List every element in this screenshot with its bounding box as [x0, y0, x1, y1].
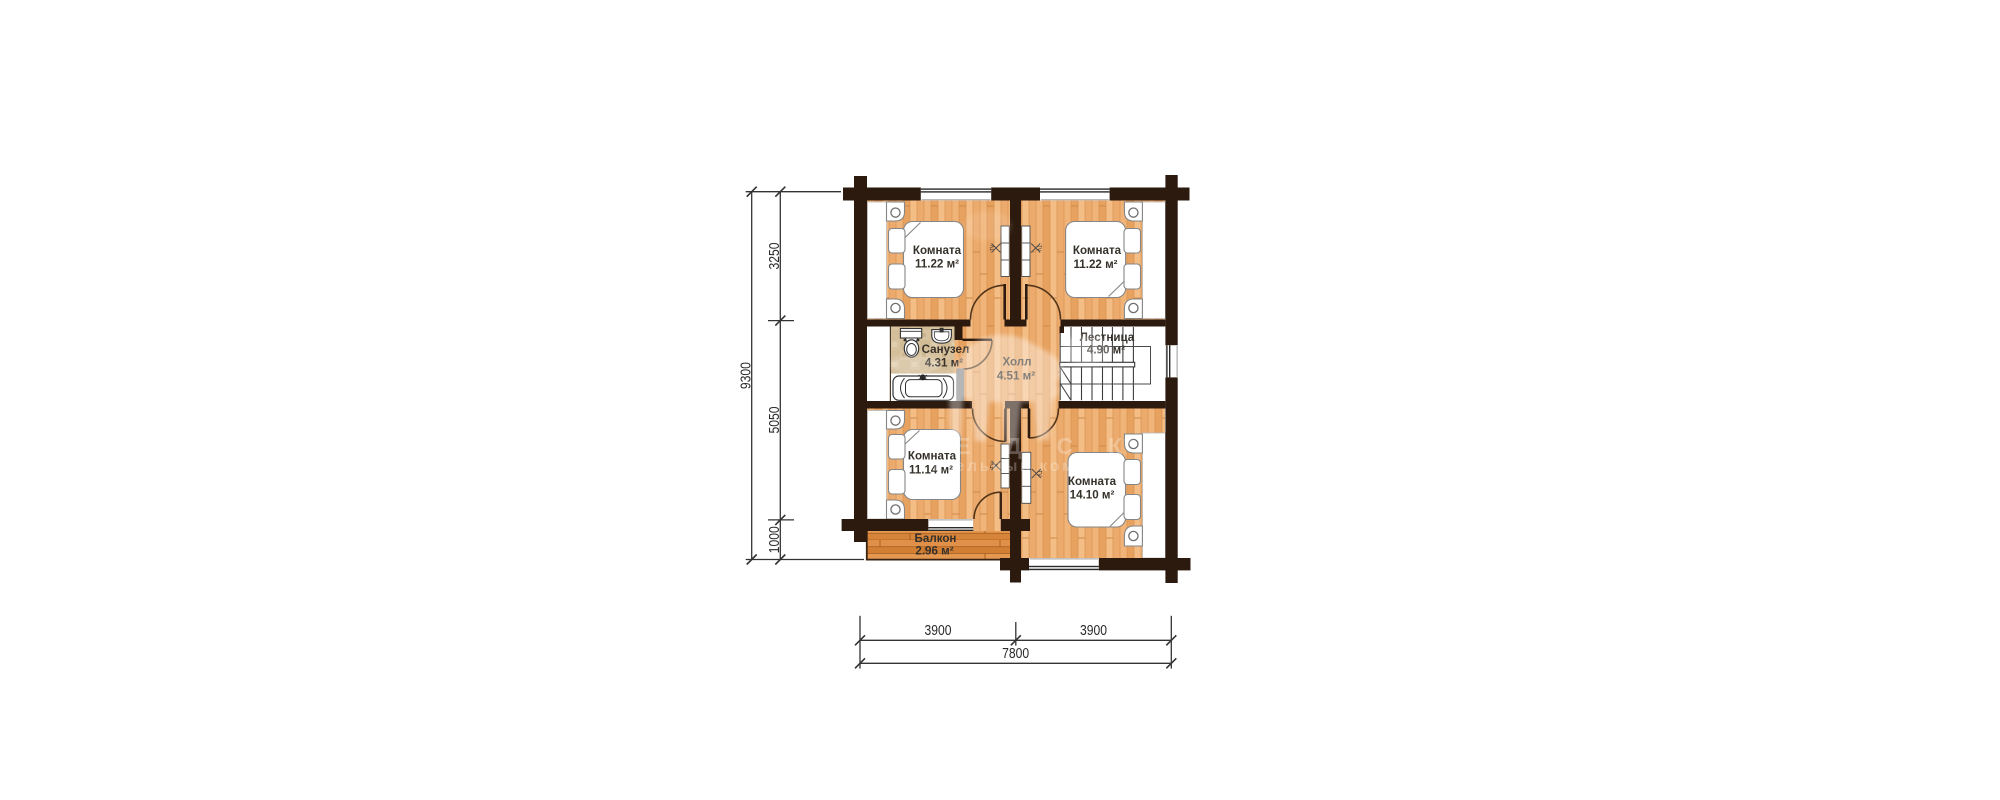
svg-text:3900: 3900 [1080, 623, 1107, 639]
svg-text:Комната: Комната [913, 244, 962, 257]
svg-text:9300: 9300 [739, 362, 755, 389]
svg-text:тм: тм [1124, 437, 1134, 446]
svg-text:5050: 5050 [767, 407, 783, 434]
svg-text:1000: 1000 [767, 526, 783, 553]
svg-text:TV: TV [1036, 245, 1042, 252]
svg-text:Комната: Комната [1073, 244, 1122, 257]
svg-text:Комната: Комната [1068, 475, 1117, 488]
svg-text:3250: 3250 [767, 243, 783, 270]
svg-text:ительный комбин: ительный комбин [933, 458, 1110, 475]
svg-text:TV: TV [990, 244, 996, 251]
svg-text:11.22 м²: 11.22 м² [1073, 258, 1117, 271]
svg-text:3900: 3900 [925, 623, 952, 639]
svg-text:Балкон: Балкон [915, 532, 957, 545]
svg-text:7800: 7800 [1002, 646, 1029, 662]
svg-text:2.96 м²: 2.96 м² [915, 545, 953, 558]
svg-text:11.22 м²: 11.22 м² [915, 258, 959, 271]
svg-text:14.10 м²: 14.10 м² [1070, 489, 1115, 502]
